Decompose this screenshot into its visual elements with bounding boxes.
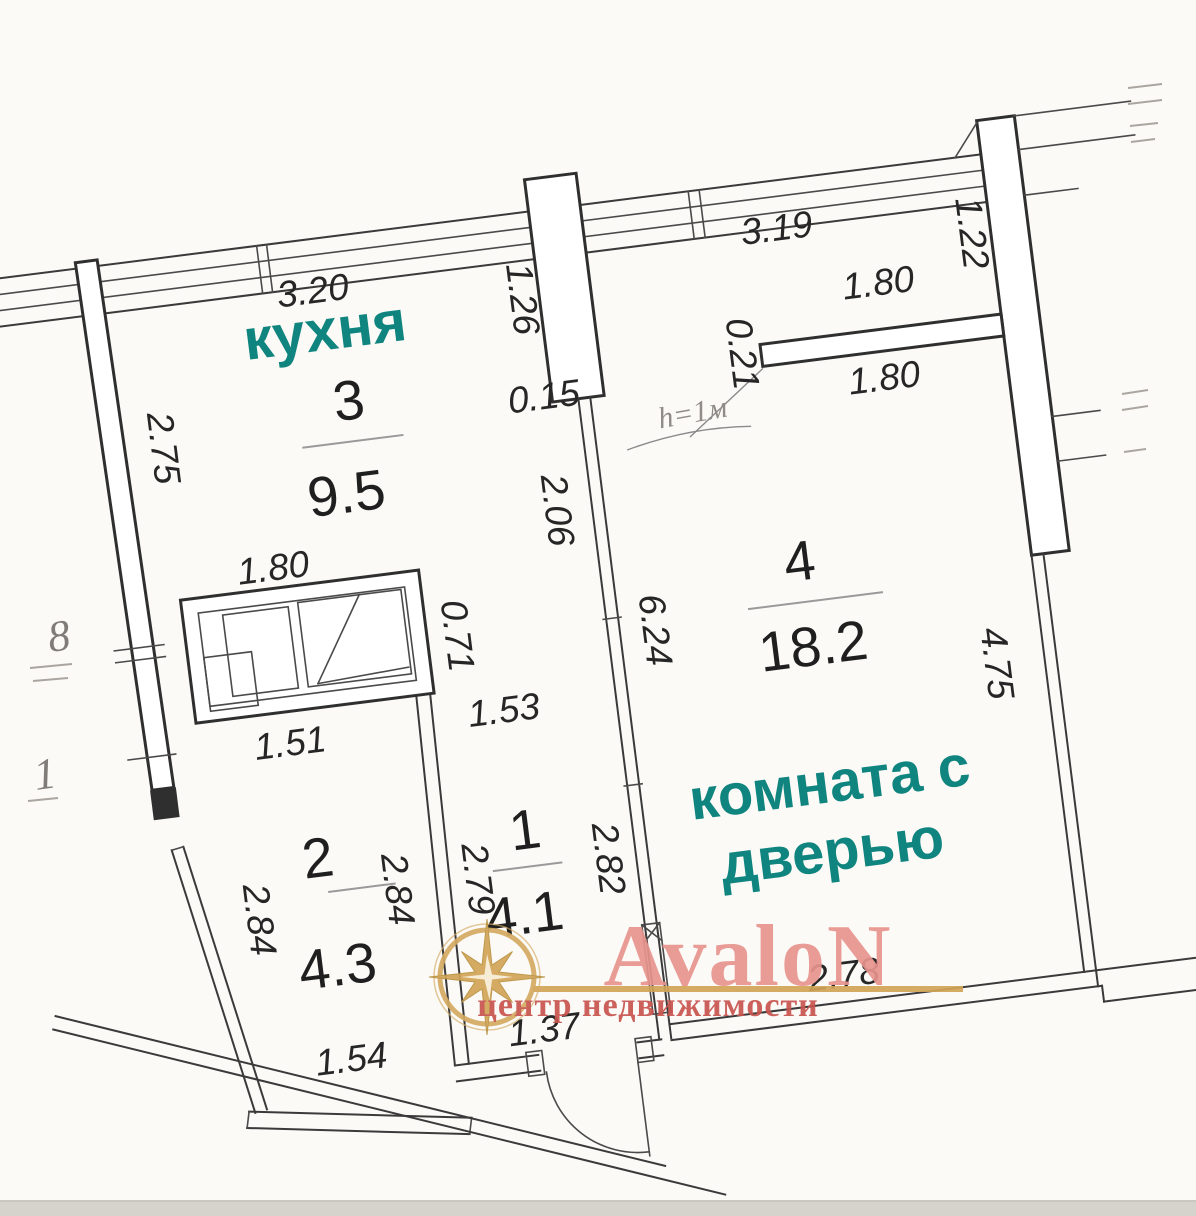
room3-area: 9.5 xyxy=(304,457,389,529)
brand-tagline: центр недвижимости xyxy=(477,987,819,1024)
room2-area: 4.3 xyxy=(295,930,380,1002)
floor-plan-svg: 3.20 1.26 3.19 1.22 1.80 0.21 1.80 0.15 … xyxy=(0,0,1196,1216)
floor-plan-scan: 3.20 1.26 3.19 1.22 1.80 0.21 1.80 0.15 … xyxy=(0,0,1196,1216)
scan-edge-strip xyxy=(0,1202,1196,1216)
